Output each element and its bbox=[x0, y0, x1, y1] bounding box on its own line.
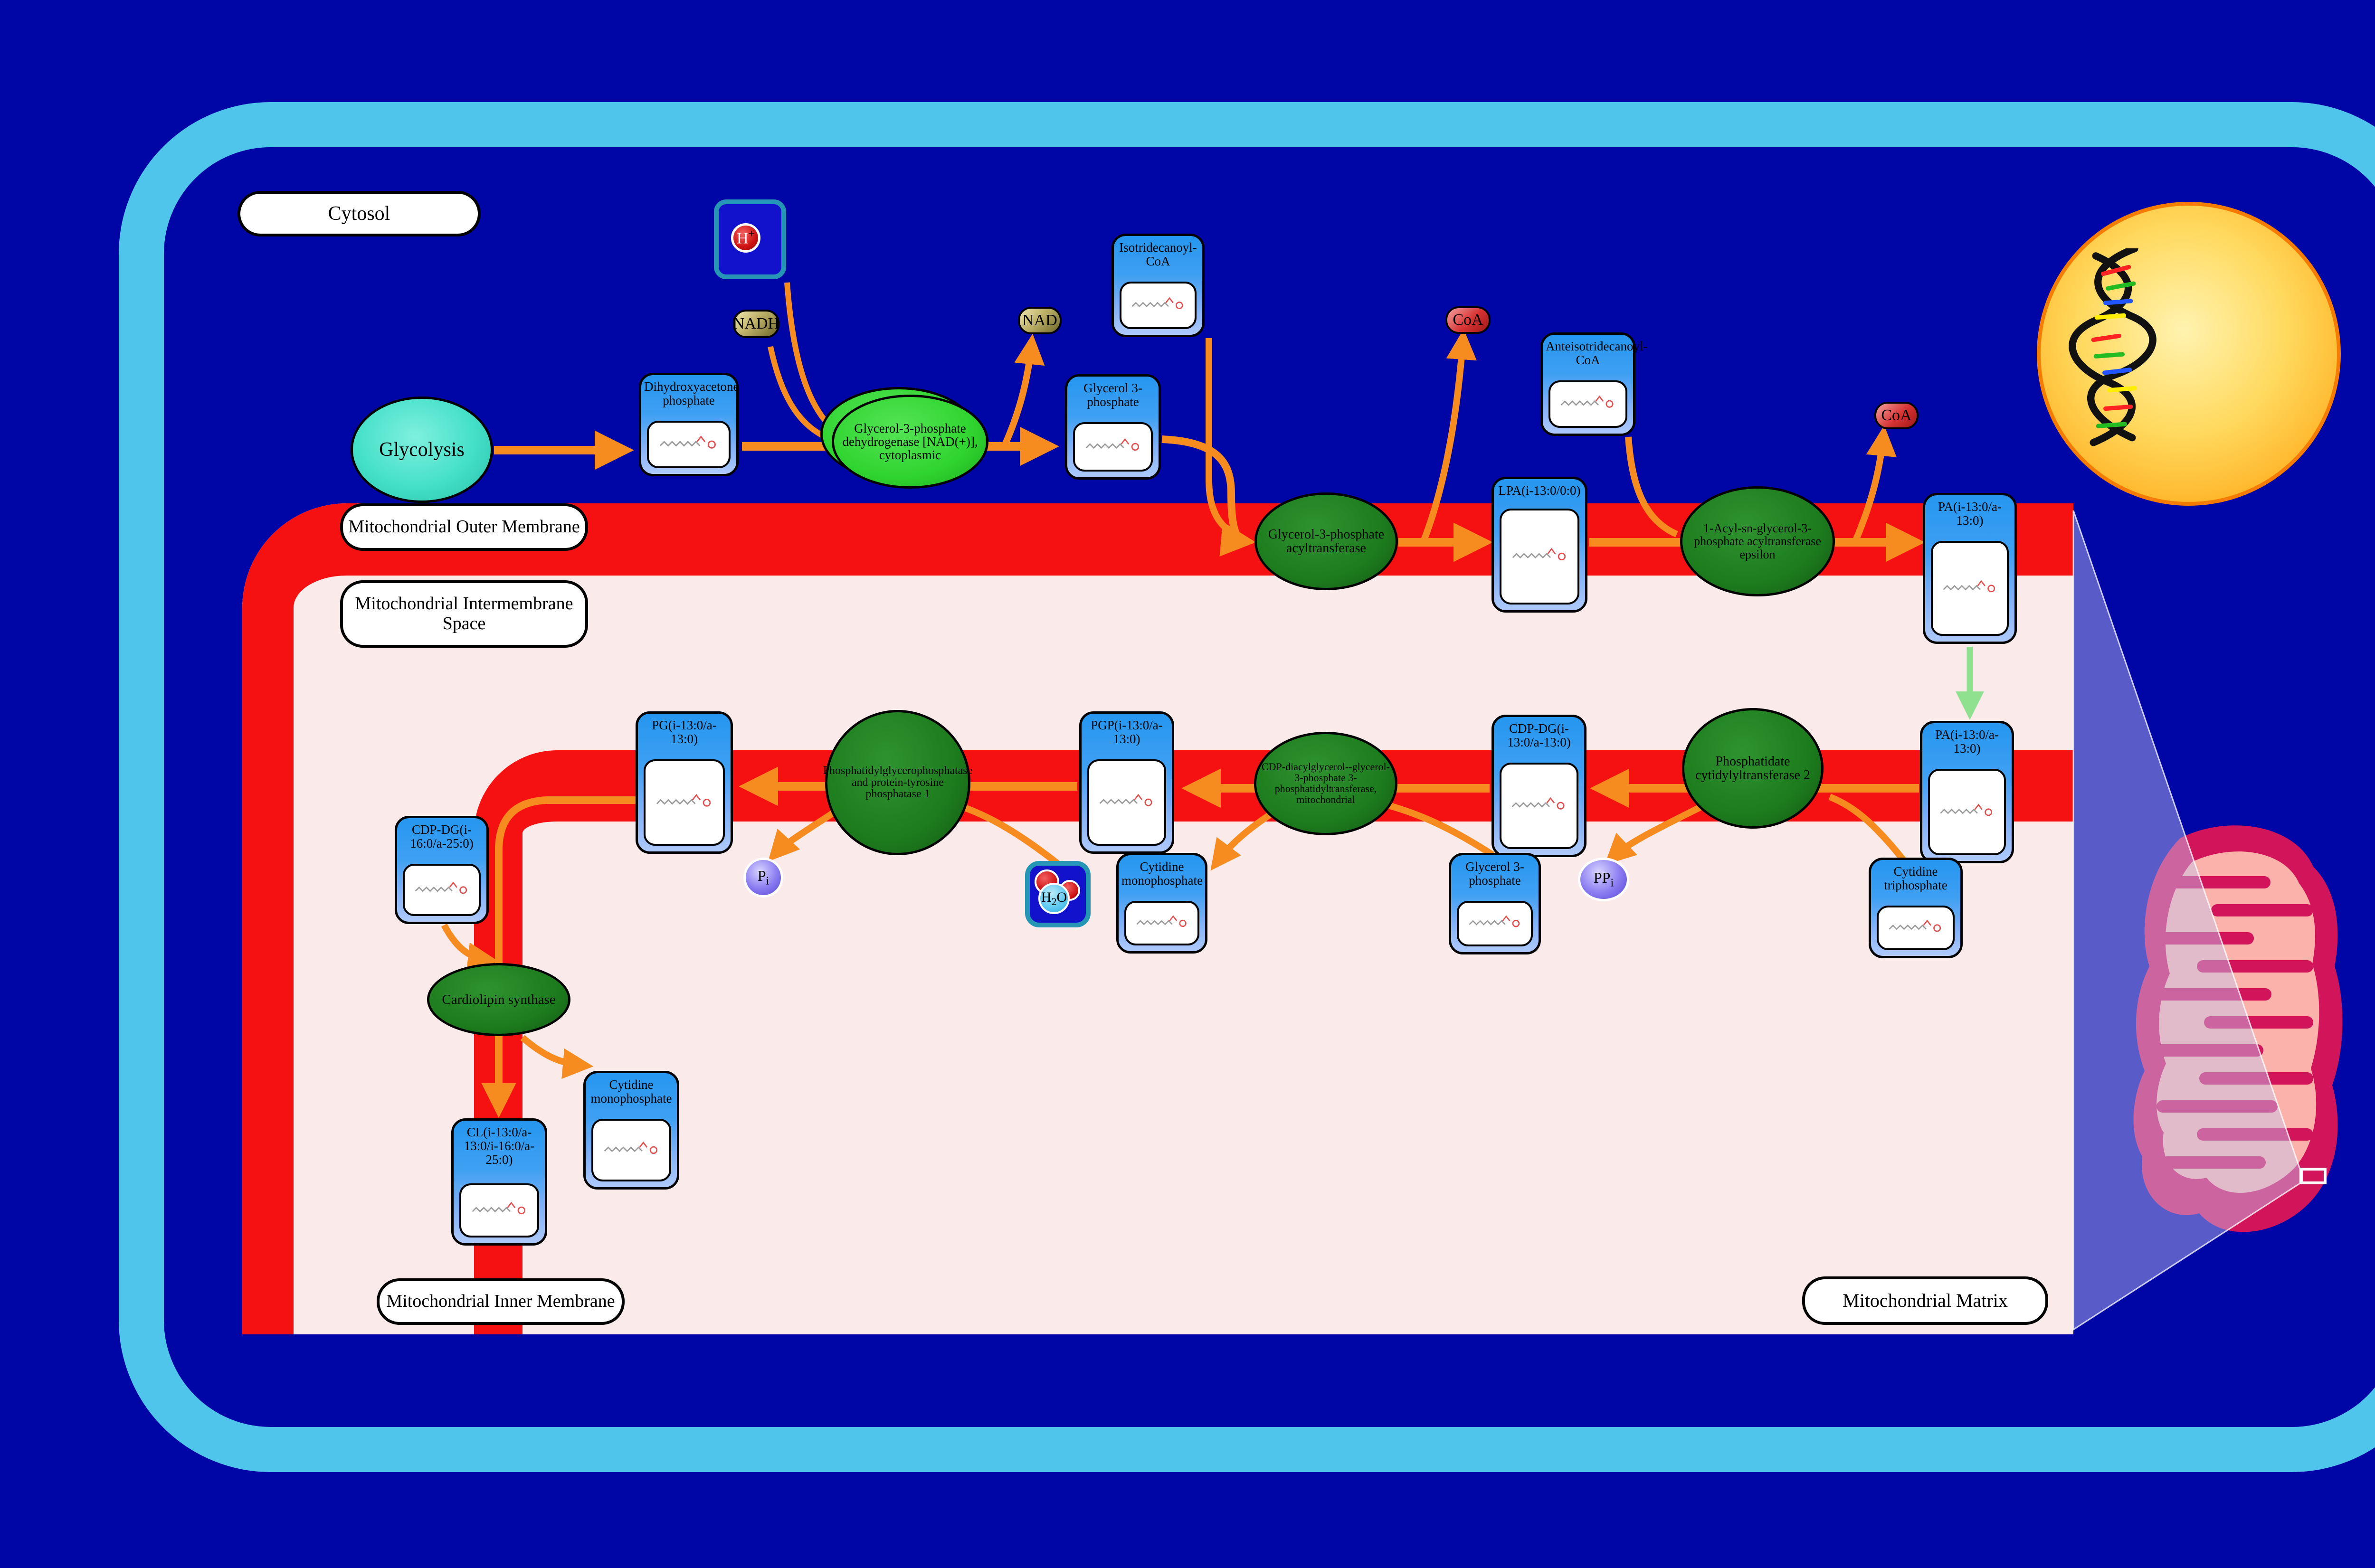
enzyme-cardiolipin-synthase-label: Cardiolipin synthase bbox=[442, 992, 555, 1007]
node-isotridecanoyl-coa[interactable]: Isotridecanoyl-CoA bbox=[1111, 234, 1205, 337]
enzyme-agpat-epsilon[interactable]: 1-Acyl-sn-glycerol-3-phosphate acyltrans… bbox=[1680, 486, 1835, 596]
node-isotridecanoyl-coa-structure bbox=[1120, 282, 1197, 329]
node-anteisotridecanoyl-coa-label: Anteisotridecanoyl-CoA bbox=[1543, 340, 1633, 367]
node-isotridecanoyl-coa-label: Isotridecanoyl-CoA bbox=[1114, 241, 1202, 268]
pill-nad-label: NAD bbox=[1022, 312, 1057, 330]
node-anteisotridecanoyl-coa[interactable]: Anteisotridecanoyl-CoA bbox=[1540, 332, 1635, 436]
node-pa-upper[interactable]: PA(i-13:0/a-13:0) bbox=[1923, 493, 2017, 644]
node-pg-structure bbox=[644, 759, 725, 846]
compartment-label-outer-membrane: Mitochondrial Outer Membrane bbox=[340, 503, 588, 551]
enzyme-gpd-cytoplasmic[interactable]: Glycerol-3-phosphate dehydrogenase [NAD(… bbox=[832, 395, 988, 489]
node-lpa-label: LPA(i-13:0/0:0) bbox=[1494, 484, 1585, 498]
dna-helix-icon bbox=[2067, 248, 2183, 453]
enzyme-pcyt2[interactable]: Phosphatidate cytidylyltransferase 2 bbox=[1682, 708, 1824, 829]
node-g3p-matrix-label: Glycerol 3-phosphate bbox=[1451, 860, 1539, 888]
compartment-label-intermembrane-space: Mitochondrial Intermembrane Space bbox=[340, 580, 588, 648]
enzyme-pgp-phosphatase[interactable]: Phosphatidylglycerophosphatase and prote… bbox=[825, 710, 970, 855]
arrow-anteisocoa-in bbox=[1628, 437, 1677, 534]
node-cdp-dg-16-label: CDP-DG(i-16:0/a-25:0) bbox=[397, 823, 486, 850]
proton-icon: H+ bbox=[731, 223, 760, 253]
pill-coa-1[interactable]: CoA bbox=[1445, 306, 1491, 334]
enzyme-pcyt2-label: Phosphatidate cytidylyltransferase 2 bbox=[1687, 755, 1818, 782]
node-pa-lower[interactable]: PA(i-13:0/a-13:0) bbox=[1920, 721, 2014, 863]
h-plus-node[interactable]: H+ bbox=[714, 199, 786, 279]
enzyme-gpd-cytoplasmic-label: Glycerol-3-phosphate dehydrogenase [NAD(… bbox=[837, 422, 983, 462]
arrow-ctp-in bbox=[1830, 797, 1904, 860]
pill-nadh[interactable]: NADH bbox=[733, 310, 779, 338]
compartment-label-cytosol: Cytosol bbox=[237, 191, 481, 236]
node-cmp-mid-label: Cytidine monophosphate bbox=[1119, 860, 1205, 888]
pi-node[interactable]: Pi bbox=[743, 858, 783, 897]
node-g3p-matrix-structure bbox=[1457, 901, 1533, 946]
node-cl-structure bbox=[459, 1183, 539, 1237]
pill-coa-2[interactable]: CoA bbox=[1874, 402, 1919, 429]
enzyme-agpat-epsilon-label: 1-Acyl-sn-glycerol-3-phosphate acyltrans… bbox=[1685, 522, 1830, 560]
arrow-coa1-out bbox=[1423, 338, 1463, 542]
arrow-nad-out bbox=[1005, 343, 1032, 445]
arrow-coa2-out bbox=[1855, 435, 1883, 542]
node-dhap-structure bbox=[647, 421, 731, 468]
node-cdp-dg-16[interactable]: CDP-DG(i-16:0/a-25:0) bbox=[395, 816, 489, 924]
node-pa-lower-label: PA(i-13:0/a-13:0) bbox=[1922, 728, 2012, 756]
node-dhap-label: Dihydroxyacetone phosphate bbox=[641, 380, 736, 407]
pill-coa-1-label: CoA bbox=[1453, 311, 1483, 329]
arrow-cdpdg16-to-cls bbox=[444, 925, 489, 960]
compartment-label-inner-membrane-text: Mitochondrial Inner Membrane bbox=[386, 1292, 615, 1312]
enzyme-cdp-dg-gp-transferase[interactable]: CDP-diacylglycerol--glycerol-3-phosphate… bbox=[1254, 732, 1397, 835]
enzyme-cardiolipin-synthase[interactable]: Cardiolipin synthase bbox=[427, 963, 570, 1036]
compartment-label-matrix-text: Mitochondrial Matrix bbox=[1843, 1290, 2008, 1311]
node-ctp[interactable]: Cytidine triphosphate bbox=[1869, 858, 1963, 958]
node-pa-lower-structure bbox=[1928, 769, 2006, 855]
compartment-label-matrix: Mitochondrial Matrix bbox=[1802, 1276, 2048, 1325]
enzyme-cdp-dg-gp-transferase-label: CDP-diacylglycerol--glycerol-3-phosphate… bbox=[1259, 762, 1392, 805]
node-g3p-matrix[interactable]: Glycerol 3-phosphate bbox=[1449, 853, 1541, 954]
node-ctp-structure bbox=[1877, 906, 1955, 950]
pill-nad[interactable]: NAD bbox=[1018, 307, 1062, 334]
node-g3p-cytosol-structure bbox=[1073, 422, 1153, 472]
node-cl-label: CL(i-13:0/a-13:0/i-16:0/a-25:0) bbox=[454, 1125, 545, 1167]
arrow-h2o-in bbox=[963, 807, 1057, 863]
node-cdp-dg-16-structure bbox=[403, 864, 481, 916]
zoom-region-indicator bbox=[2300, 1168, 2327, 1184]
node-pg-label: PG(i-13:0/a-13:0) bbox=[638, 718, 731, 746]
node-ctp-label: Cytidine triphosphate bbox=[1871, 865, 1960, 892]
pathway-canvas: Glycolysis H+ H2O Pi PPi bbox=[0, 0, 2375, 1568]
node-cdp-dg-13-structure bbox=[1500, 763, 1578, 849]
arrow-ppi-out bbox=[1611, 803, 1708, 859]
node-cmp-mid-structure bbox=[1124, 901, 1199, 945]
arrow-pi-out bbox=[774, 807, 842, 855]
compartment-label-outer-membrane-text: Mitochondrial Outer Membrane bbox=[348, 517, 580, 537]
compartment-label-inner-membrane: Mitochondrial Inner Membrane bbox=[377, 1278, 625, 1325]
enzyme-pgp-phosphatase-label: Phosphatidylglycerophosphatase and prote… bbox=[823, 765, 973, 801]
node-cdp-dg-13[interactable]: CDP-DG(i-13:0/a-13:0) bbox=[1491, 715, 1586, 857]
node-cmp-left[interactable]: Cytidine monophosphate bbox=[583, 1071, 679, 1190]
node-g3p-cytosol-label: Glycerol 3-phosphate bbox=[1067, 381, 1159, 409]
water-molecule-icon: H2O bbox=[1038, 883, 1070, 914]
compartment-label-intermembrane-space-text: Mitochondrial Intermembrane Space bbox=[343, 594, 585, 634]
arrow-g3p-to-gpat bbox=[1162, 439, 1245, 541]
enzyme-gpat-label: Glycerol-3-phosphate acyltransferase bbox=[1260, 528, 1393, 555]
node-cmp-left-label: Cytidine monophosphate bbox=[586, 1078, 677, 1105]
nucleus bbox=[2037, 202, 2341, 506]
h2o-node[interactable]: H2O bbox=[1025, 861, 1091, 927]
arrow-isocoa-in bbox=[1209, 338, 1242, 538]
pill-nadh-label: NADH bbox=[733, 315, 779, 333]
node-lpa-structure bbox=[1500, 509, 1579, 605]
node-pa-upper-structure bbox=[1931, 541, 2009, 636]
ppi-node[interactable]: PPi bbox=[1578, 858, 1629, 901]
pill-coa-2-label: CoA bbox=[1881, 406, 1911, 425]
compartment-label-cytosol-text: Cytosol bbox=[328, 203, 390, 225]
node-pa-upper-label: PA(i-13:0/a-13:0) bbox=[1925, 500, 2014, 528]
node-lpa[interactable]: LPA(i-13:0/0:0) bbox=[1491, 477, 1587, 613]
node-pg[interactable]: PG(i-13:0/a-13:0) bbox=[636, 711, 733, 854]
node-dhap[interactable]: Dihydroxyacetone phosphate bbox=[639, 373, 739, 476]
node-pgp-label: PGP(i-13:0/a-13:0) bbox=[1082, 718, 1172, 746]
node-cmp-mid[interactable]: Cytidine monophosphate bbox=[1116, 853, 1207, 954]
node-pgp[interactable]: PGP(i-13:0/a-13:0) bbox=[1079, 711, 1174, 854]
arrow-cls-to-cmp bbox=[522, 1038, 584, 1066]
node-cl[interactable]: CL(i-13:0/a-13:0/i-16:0/a-25:0) bbox=[451, 1118, 547, 1246]
node-cdp-dg-13-label: CDP-DG(i-13:0/a-13:0) bbox=[1494, 722, 1584, 749]
node-g3p-cytosol[interactable]: Glycerol 3-phosphate bbox=[1065, 374, 1161, 480]
node-cmp-left-structure bbox=[591, 1119, 671, 1181]
glycolysis-process[interactable]: Glycolysis bbox=[351, 397, 493, 503]
node-pgp-structure bbox=[1087, 759, 1166, 846]
enzyme-gpat[interactable]: Glycerol-3-phosphate acyltransferase bbox=[1254, 492, 1398, 590]
arrow-g3pm-in bbox=[1381, 803, 1492, 855]
glycolysis-label: Glycolysis bbox=[379, 438, 465, 461]
node-anteisotridecanoyl-coa-structure bbox=[1548, 380, 1627, 428]
